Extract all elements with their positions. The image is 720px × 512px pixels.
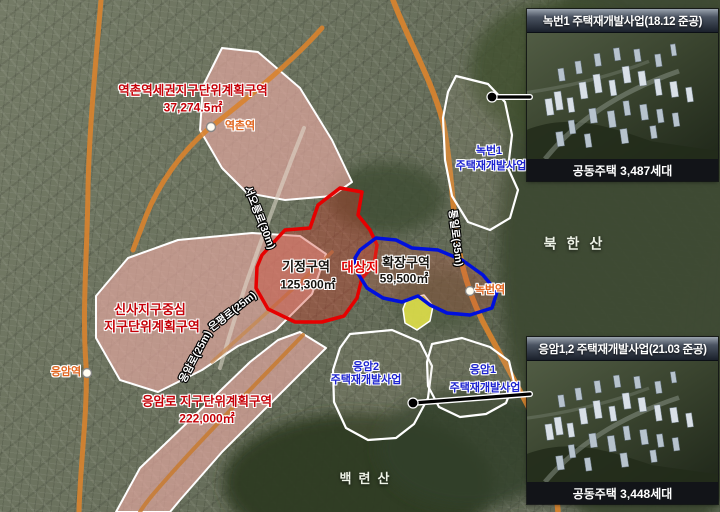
eungam2-label-line2: 주택재개발사업 [331, 375, 402, 387]
redevelopment-map: 역촌역세권지구단위계획구역 37,274.5㎡ 역촌역 응암역 녹번역 서오릉로… [0, 0, 720, 512]
inset-eungam12-caption: 공동주택 3,448세대 [573, 485, 673, 502]
aerial-photo [527, 32, 718, 159]
inset-eungam12-caption-bar: 공동주택 3,448세대 [527, 482, 718, 504]
inset-nokbeon1-title: 녹번1 주택재개발사업(18.12 준공) [543, 13, 702, 29]
inset-nokbeon1-title-bar: 녹번1 주택재개발사업(18.12 준공) [527, 9, 718, 33]
aerial-photo [527, 360, 718, 482]
inset-eungam12-title: 응암1,2 주택재개발사업(21.03 준공) [538, 341, 706, 357]
inset-eungam12-photo [527, 360, 718, 482]
expansion-zone-title: 확장구역 [382, 256, 430, 270]
inset-nokbeon1-caption-bar: 공동주택 3,487세대 [527, 159, 718, 181]
inset-eungam12-title-bar: 응암1,2 주택재개발사업(21.03 준공) [527, 337, 718, 361]
bukhansan-label: 북한산 [544, 237, 613, 252]
nokbeon-station-label: 녹번역 [475, 285, 505, 297]
zone-eungamro-title: 응암로 지구단위계획구역 [142, 395, 272, 408]
nokbeon1-label-line2: 주택재개발사업 [456, 161, 527, 173]
road-left-arterial [79, 0, 101, 512]
existing-zone-area: 125,300㎡ [280, 279, 335, 292]
eungam2-label-line1: 응암2 [353, 362, 379, 374]
zone-eungamro-area: 222,000㎡ [179, 413, 234, 426]
zone-yeokchon-title: 역촌역세권지구단위계획구역 [118, 84, 268, 97]
inset-nokbeon1: 녹번1 주택재개발사업(18.12 준공) 공동주택 3,487세대 [527, 9, 718, 181]
inset-eungam12: 응암1,2 주택재개발사업(21.03 준공) 공동주택 3,448세대 [527, 337, 718, 504]
zone-sinsa-title-line1: 신사지구중심 [114, 303, 186, 317]
eungam1-label-line2: 주택재개발사업 [450, 383, 521, 395]
inset-nokbeon1-photo [527, 32, 718, 159]
eungam-station-label: 응암역 [51, 367, 81, 379]
expansion-zone-area: 59,500㎡ [380, 273, 429, 286]
yeokchon-station-dot [207, 123, 216, 132]
existing-zone-title: 기정구역 [282, 260, 330, 274]
target-site-label: 대상지 [341, 261, 378, 275]
nokbeon1-label-line1: 녹번1 [476, 146, 502, 158]
baengnyeonsan-label: 백련산 [340, 472, 397, 486]
zone-sinsa-title-line2: 지구단위계획구역 [104, 320, 200, 334]
eungam-station-dot [83, 369, 92, 378]
zone-yeokchon-area: 37,274.5㎡ [164, 102, 223, 115]
yeokchon-station-label: 역촌역 [225, 121, 255, 133]
inset-nokbeon1-caption: 공동주택 3,487세대 [573, 162, 673, 179]
eungam1-label-line1: 응암1 [470, 365, 496, 377]
nokbeon-station-dot [466, 287, 475, 296]
